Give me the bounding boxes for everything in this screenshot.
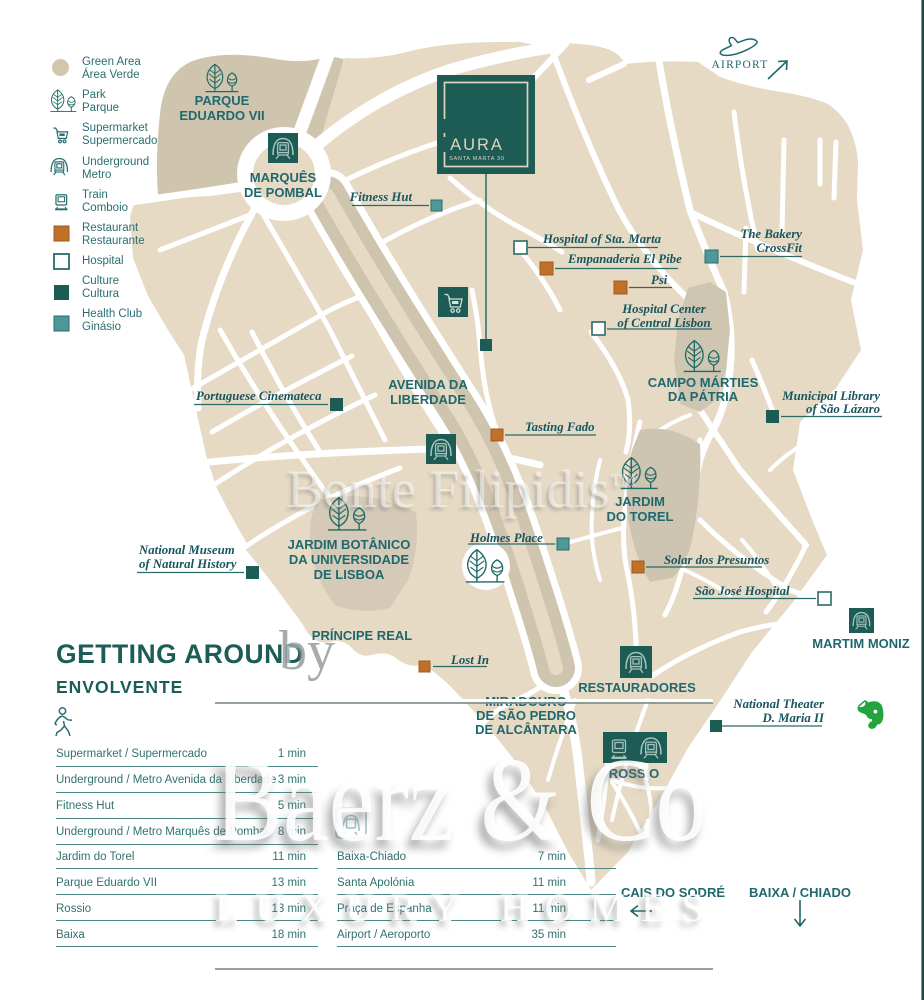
svg-text:Psi: Psi <box>651 273 668 287</box>
svg-text:of Central Lisbon: of Central Lisbon <box>617 316 710 330</box>
svg-text:National Museum: National Museum <box>138 543 235 557</box>
svg-text:São José Hospital: São José Hospital <box>695 584 790 598</box>
svg-text:AURA: AURA <box>450 136 504 154</box>
svg-text:Municipal Library: Municipal Library <box>781 389 880 403</box>
svg-text:CrossFit: CrossFit <box>756 241 802 255</box>
svg-text:MARTIM MONIZ: MARTIM MONIZ <box>812 636 910 651</box>
svg-text:LIBERDADE: LIBERDADE <box>390 392 466 407</box>
svg-text:JARDIM BOTÂNICO: JARDIM BOTÂNICO <box>288 537 411 552</box>
svg-text:PARQUE: PARQUE <box>195 93 250 108</box>
svg-text:AIRPORT: AIRPORT <box>712 59 769 71</box>
svg-text:Lost In: Lost In <box>450 653 489 667</box>
svg-text:SANTA MARTA 30: SANTA MARTA 30 <box>449 156 505 162</box>
svg-text:National Theater: National Theater <box>732 697 825 711</box>
svg-text:of São Lázaro: of São Lázaro <box>806 402 880 416</box>
svg-text:Empanaderia El Pibe: Empanaderia El Pibe <box>567 252 682 266</box>
svg-text:Holmes Place: Holmes Place <box>469 531 543 545</box>
svg-text:MIRADOURO: MIRADOURO <box>485 694 567 709</box>
svg-text:Hospital of Sta. Marta: Hospital of Sta. Marta <box>542 232 662 246</box>
svg-text:Fitness Hut: Fitness Hut <box>349 190 413 204</box>
svg-text:DA PÁTRIA: DA PÁTRIA <box>668 389 739 404</box>
svg-text:DE POMBAL: DE POMBAL <box>244 185 322 200</box>
svg-text:MARQUÊS: MARQUÊS <box>250 170 317 185</box>
svg-text:D. Maria II: D. Maria II <box>761 711 825 725</box>
svg-text:RESTAURADORES: RESTAURADORES <box>578 680 696 695</box>
svg-text:EDUARDO VII: EDUARDO VII <box>179 108 264 123</box>
svg-text:AVENIDA DA: AVENIDA DA <box>388 377 468 392</box>
svg-text:Tasting Fado: Tasting Fado <box>525 420 595 434</box>
svg-text:DA UNIVERSIDADE: DA UNIVERSIDADE <box>289 552 409 567</box>
svg-text:Hospital Center: Hospital Center <box>621 302 707 316</box>
svg-text:of Natural History: of Natural History <box>139 557 237 571</box>
svg-text:BAIXA / CHIADO: BAIXA / CHIADO <box>749 885 851 900</box>
svg-text:Portuguese Cinemateca: Portuguese Cinemateca <box>196 389 322 403</box>
svg-text:The Bakery: The Bakery <box>741 227 803 241</box>
svg-text:DE LISBOA: DE LISBOA <box>314 567 385 582</box>
svg-text:CAMPO MÁRTIES: CAMPO MÁRTIES <box>648 375 759 390</box>
svg-text:Solar dos Presuntos: Solar dos Presuntos <box>664 553 769 567</box>
svg-text:DE SÃO PEDRO: DE SÃO PEDRO <box>476 708 576 723</box>
